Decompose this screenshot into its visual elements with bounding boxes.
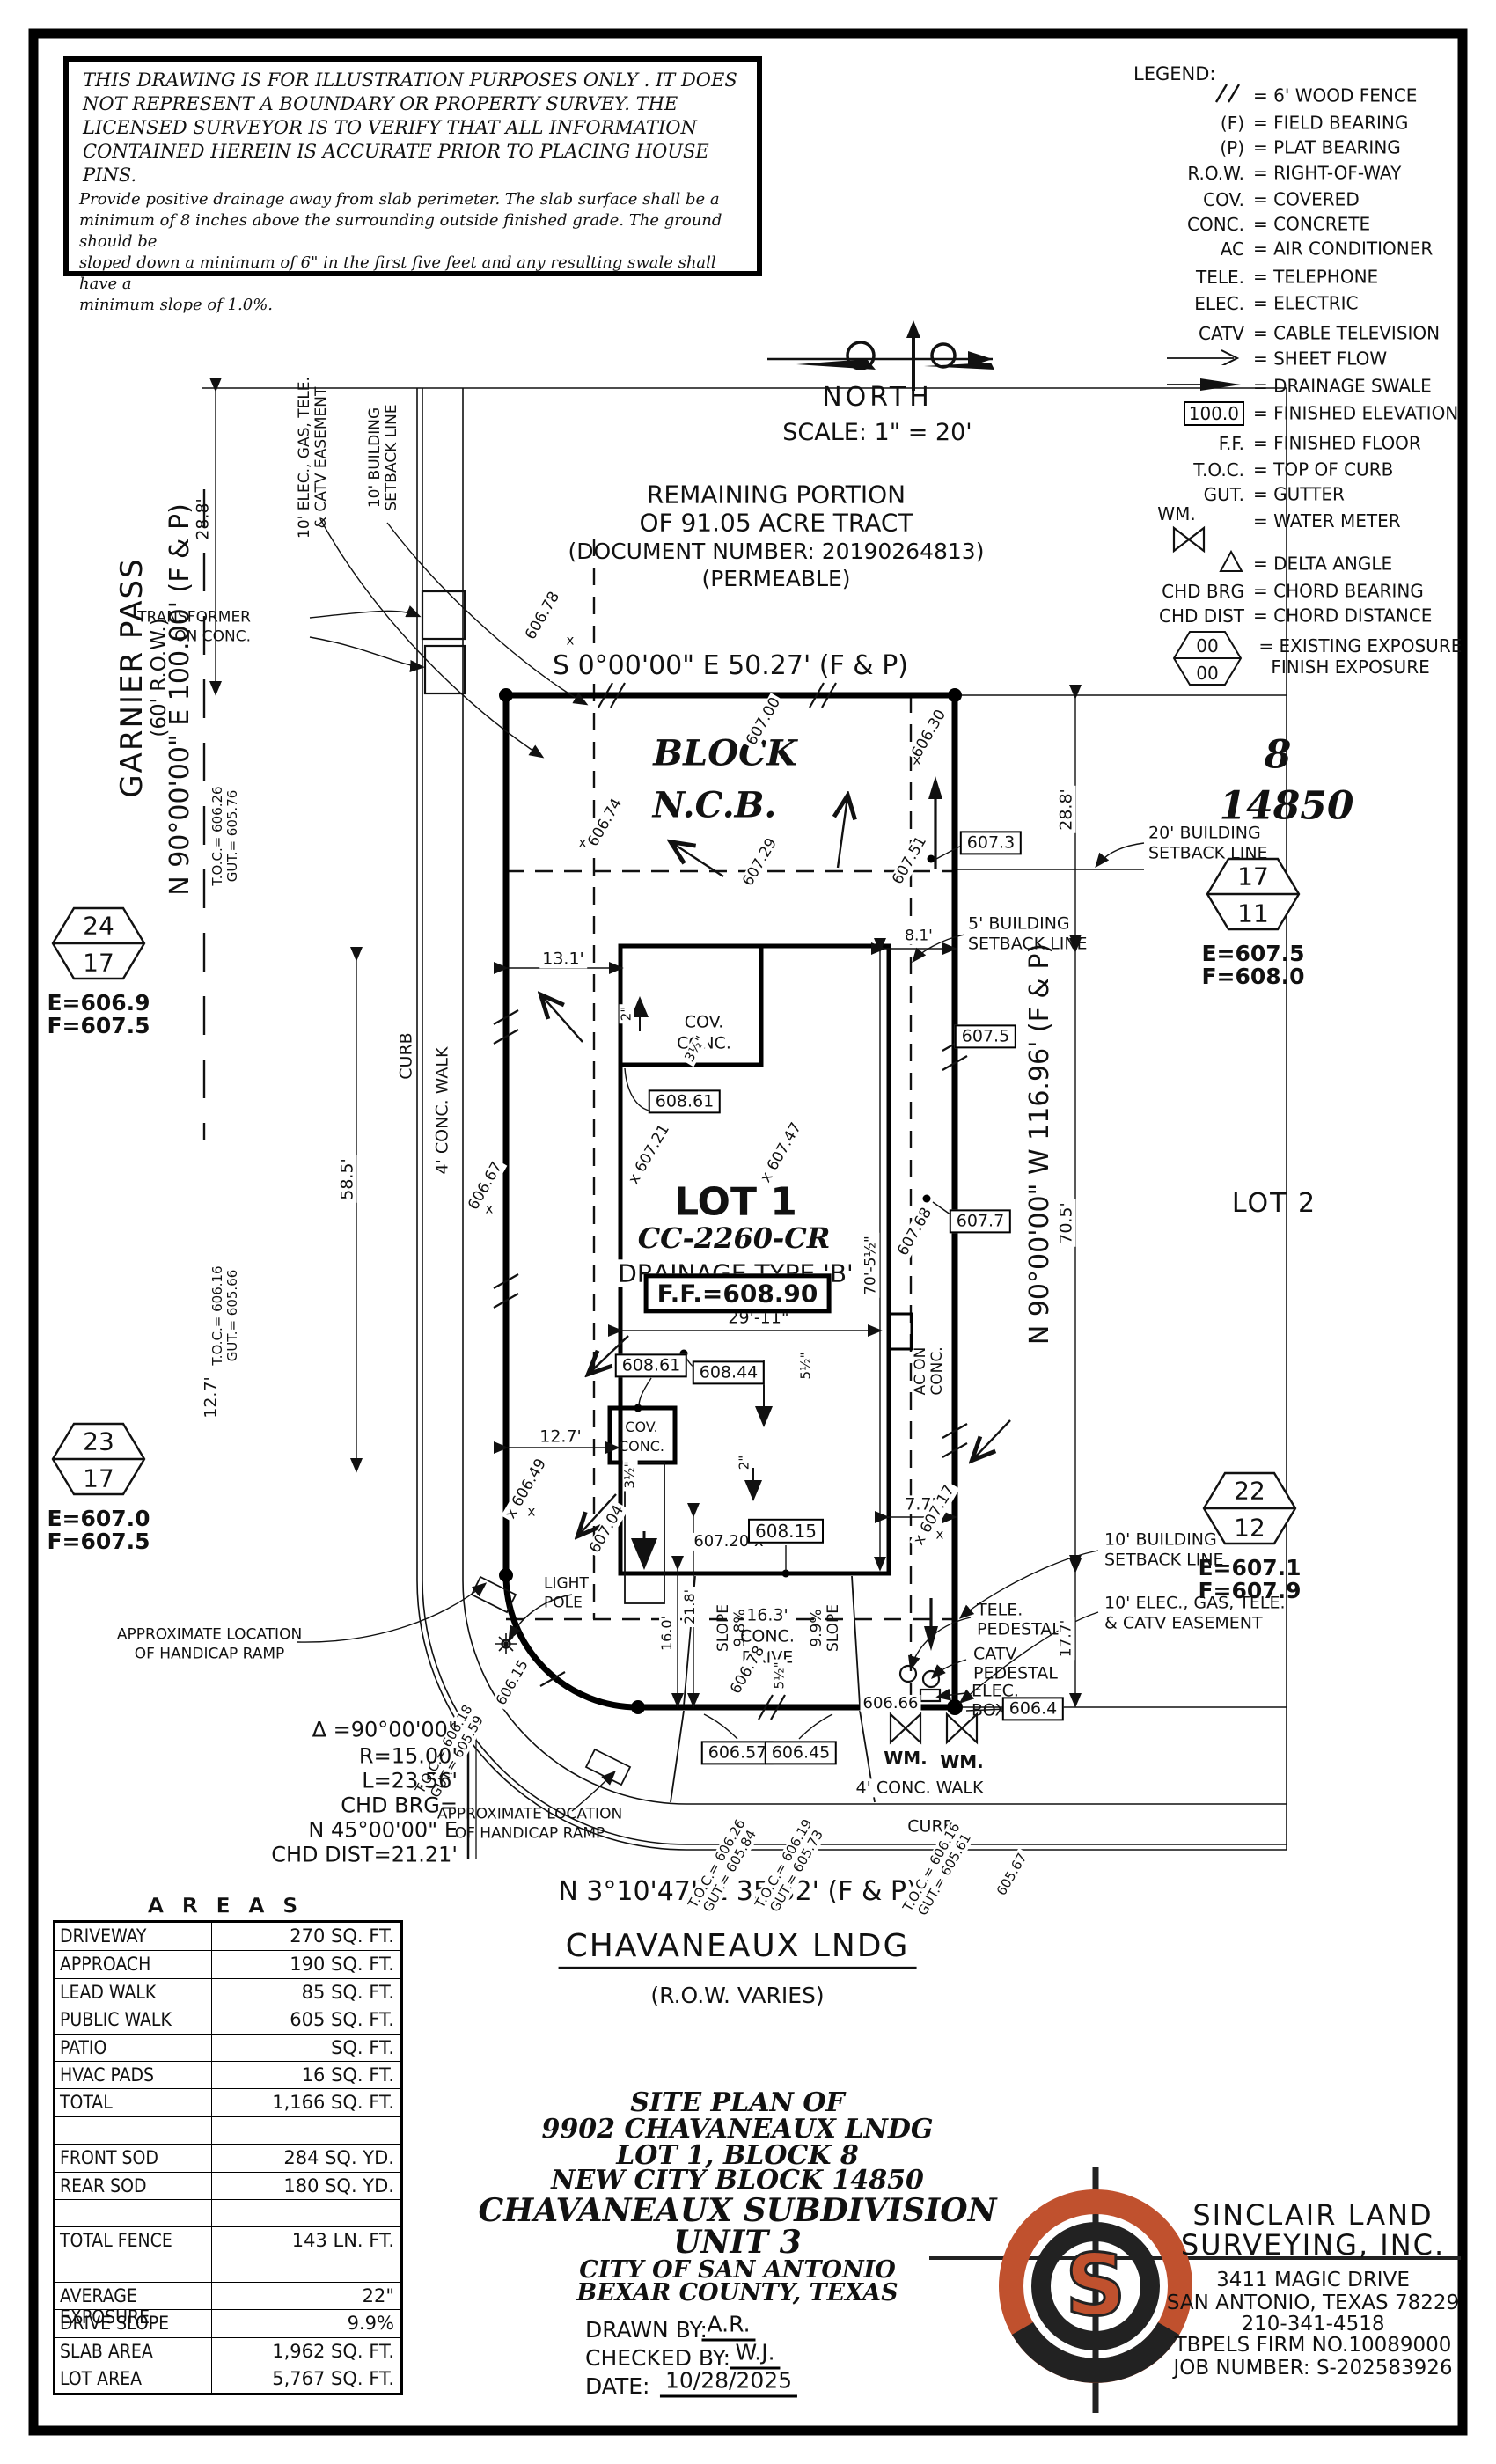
delta-angle-icon [1218, 549, 1244, 574]
table-row: REAR SOD180 SQ. YD. [55, 2172, 400, 2199]
finished-floor-box: F.F.=608.90 [644, 1273, 832, 1313]
street-row-garnier: (60' R.O.W.) [149, 618, 172, 737]
date-value: 10/28/2025 [660, 2369, 797, 2398]
legend-row-sheet-flow: = SHEET FLOW [1133, 347, 1485, 370]
table-row: TOTAL FENCE143 LN. FT. [55, 2226, 400, 2254]
wm-label: WM. [940, 1752, 984, 1771]
x-marker: x [567, 634, 575, 649]
curve-data: R=15.00' [359, 1745, 458, 1769]
hex-marker-value: 17 [1237, 862, 1269, 890]
light-pole-label: POLE [544, 1595, 583, 1611]
setback5-label: 5' BUILDING [968, 914, 1070, 933]
curve-data: N 45°00'00" E [308, 1819, 458, 1843]
x-marker: x [913, 753, 921, 768]
table-row [55, 2116, 400, 2144]
svg-text:00: 00 [1196, 635, 1218, 656]
dim-5half: 5½" [773, 1660, 788, 1692]
legend-row: COV.= COVERED [1133, 187, 1485, 210]
legend-row: GUT.= GUTTER [1133, 482, 1485, 505]
conc-walk-label: 4' CONC. WALK [854, 1778, 986, 1797]
svg-text:00: 00 [1196, 663, 1218, 684]
hex-finish-elev: F=607.9 [1198, 1579, 1301, 1603]
legend-row: CHD DIST= CHORD DISTANCE [1133, 604, 1485, 627]
dim-16-0: 16.0' [659, 1613, 675, 1654]
curve-data: L=23.56' [362, 1770, 458, 1793]
job-number: JOB NUMBER: S-202583926 [1173, 2358, 1452, 2380]
spot-elevation: 606.66 [861, 1695, 921, 1712]
title-block-line: UNIT 3 [673, 2225, 802, 2260]
block-label: BLOCK [653, 735, 796, 774]
curb-label: CURB [397, 1032, 415, 1079]
firm-name: SINCLAIR LAND [1192, 2200, 1433, 2232]
dim-5half: 5½" [799, 1350, 814, 1382]
legend-row-delta: = DELTA ANGLE [1133, 549, 1485, 578]
exposure-hex-icon: 0000 [1170, 628, 1244, 688]
dim-3half: 3½" [623, 1459, 638, 1492]
x-marker: x [528, 1505, 536, 1520]
title-block-line: BEXAR COUNTY, TEXAS [576, 2280, 898, 2306]
hex-existing-elev: E=606.9 [47, 991, 150, 1016]
x-marker: x [486, 1202, 494, 1217]
legend-row-wood-fence: = 6' WOOD FENCE [1133, 83, 1485, 108]
handicap-ramp-label: OF HANDICAP RAMP [455, 1825, 605, 1842]
boxed-elevation: 608.61 [615, 1353, 687, 1377]
cov-conc-label: COV. [625, 1419, 657, 1435]
table-row: DRIVE SLOPE9.9% [55, 2309, 400, 2336]
street-name-garnier-pass: GARNIER PASS [115, 557, 149, 797]
table-row: TOTAL1,166 SQ. FT. [55, 2088, 400, 2116]
table-row [55, 2199, 400, 2226]
block-number: 8 [1265, 733, 1292, 776]
wm-label: WM. [884, 1749, 928, 1768]
dim-2in: 2" [737, 1453, 752, 1472]
x-marker: x [936, 1528, 944, 1543]
firm-address: SAN ANTONIO, TEXAS 78229 [1167, 2292, 1459, 2315]
transformer-label: ON CONC. [174, 628, 251, 645]
setback5-label: SETBACK LINE [968, 935, 1088, 953]
hex-marker-value: 12 [1234, 1514, 1265, 1541]
legend-row: AC= AIR CONDITIONER [1133, 237, 1485, 260]
logo-letter: S [1065, 2236, 1126, 2335]
curve-data: CHD BRG= [341, 1794, 458, 1818]
table-row: AVERAGE EXPOSURE22" [55, 2282, 400, 2309]
cov-conc-label: COV. [685, 1013, 723, 1031]
catv-pedestal-symbol [923, 1671, 939, 1687]
setback10-label: 10' BUILDING [1104, 1530, 1217, 1549]
handicap-ramp-label: OF HANDICAP RAMP [135, 1646, 285, 1662]
x-marker: x [579, 836, 587, 851]
boxed-elevation: 607.7 [950, 1209, 1011, 1233]
firm-name: SURVEYING, INC. [1181, 2230, 1445, 2262]
disclaimer-box: THIS DRAWING IS FOR ILLUSTRATION PURPOSE… [63, 56, 762, 276]
table-row: HVAC PADS16 SQ. FT. [55, 2061, 400, 2088]
light-pole-symbol [495, 1633, 517, 1654]
survey-sheet: S THIS DRAWING IS FOR ILLUSTRATION PURPO… [0, 0, 1496, 2464]
drive-slope-label: 9.9%SLOPE [809, 1604, 842, 1652]
legend-row: CHD BRG= CHORD BEARING [1133, 579, 1485, 602]
boxed-elevation: 607.5 [955, 1024, 1016, 1048]
setback10-vertical-label: 10' BUILDINGSETBACK LINE [367, 404, 400, 510]
tract-line: (PERMEABLE) [701, 567, 850, 591]
ac-on-conc-label: AC ONCONC. [913, 1346, 946, 1395]
disclaimer-notes: Provide positive drainage away from slab… [79, 189, 757, 316]
tract-line: (DOCUMENT NUMBER: 20190264813) [568, 539, 985, 564]
title-block-line: NEW CITY BLOCK 14850 [551, 2166, 924, 2196]
table-row: SLAB AREA1,962 SQ. FT. [55, 2337, 400, 2365]
handicap-ramp-label: APPROXIMATE LOCATION [117, 1626, 302, 1643]
curve-data: Δ =90°00'00" [312, 1719, 458, 1742]
toc-gut-pair: T.O.C.= 606.26GUT.= 605.76 [210, 783, 240, 888]
tele-pedestal-label: PEDESTAL [977, 1620, 1061, 1639]
lot1-label: LOT 1 [671, 1180, 800, 1223]
bearing-top: S 0°00'00" E 50.27' (F & P) [550, 651, 911, 681]
tract-line: OF 91.05 ACRE TRACT [639, 509, 913, 536]
plan-code: CC-2260-CR [635, 1223, 833, 1255]
bearing-bottom: N 3°10'47" E 35.32' (F & P) [555, 1877, 919, 1907]
transformer-label: TRANSFORMER [137, 609, 251, 626]
elec-box-label: BOX [972, 1701, 1006, 1720]
checked-by-value: W.J. [730, 2341, 780, 2370]
north-label: NORTH [822, 383, 933, 413]
dim-70-5half: 70'-5½" [862, 1233, 879, 1298]
tract-line: REMAINING PORTION [647, 480, 906, 508]
dim-17-7: 17.7' [1058, 1617, 1074, 1661]
legend-row: CATV= CABLE TELEVISION [1133, 321, 1485, 344]
boxed-elevation: 606.4 [1002, 1697, 1064, 1720]
easement10-vertical-label: 10' ELEC., GAS, TELE.& CATV EASEMENT [297, 377, 330, 539]
boxed-elevation: 608.61 [649, 1089, 721, 1113]
boxed-elevation: 607.3 [960, 831, 1022, 854]
legend-row: R.O.W.= RIGHT-OF-WAY [1133, 161, 1485, 184]
legend-row: CONC.= CONCRETE [1133, 212, 1485, 235]
dim-12-7: 12.7' [537, 1427, 584, 1446]
setback20-label: SETBACK LINE [1148, 844, 1268, 862]
legend-row-drainage-swale: = DRAINAGE SWALE [1133, 374, 1485, 397]
table-row: PUBLIC WALK605 SQ. FT. [55, 2006, 400, 2033]
boxed-elevation: 608.15 [748, 1519, 824, 1544]
dim-28-8-left: 28.8' [194, 498, 212, 540]
dim-28-8-right: 28.8' [1057, 786, 1075, 833]
hex-marker-value: 11 [1237, 899, 1269, 927]
boxed-elevation: 608.44 [693, 1360, 765, 1384]
hex-marker-value: 17 [83, 1464, 114, 1492]
disclaimer-caps: THIS DRAWING IS FOR ILLUSTRATION PURPOSE… [83, 69, 757, 187]
conc-drive-label: 16.3' [744, 1606, 791, 1624]
table-row [55, 2255, 400, 2282]
drawn-by-value: A.R. [701, 2313, 755, 2342]
table-row: FRONT SOD284 SQ. YD. [55, 2144, 400, 2171]
drawn-by-label: DRAWN BY: [585, 2318, 708, 2343]
table-row: PATIOSQ. FT. [55, 2034, 400, 2061]
hex-finish-elev: F=607.5 [47, 1529, 150, 1554]
light-pole-label: LIGHT [544, 1575, 589, 1592]
legend-row-finished-elevation: 100.0= FINISHED ELEVATION [1133, 401, 1485, 424]
ncb-label: N.C.B. [653, 787, 777, 826]
north-compass [767, 320, 994, 391]
sheet-flow-icon [1165, 348, 1244, 365]
conc-walk-label: 4' CONC. WALK [433, 1047, 451, 1175]
cov-conc-label: CONC. [619, 1439, 664, 1455]
firm-address: 3411 MAGIC DRIVE [1216, 2270, 1410, 2292]
street-row-chavaneaux: (R.O.W. VARIES) [650, 1984, 824, 2008]
firm-registration: TBPELS FIRM NO.10089000 [1175, 2335, 1452, 2358]
table-row: LOT AREA5,767 SQ. FT. [55, 2365, 400, 2392]
firm-phone: 210-341-4518 [1242, 2314, 1385, 2336]
ncb-number: 14850 [1219, 784, 1353, 827]
date-label: DATE: [585, 2374, 649, 2399]
street-name-chavaneaux: CHAVANEAUX LNDG [559, 1929, 917, 1969]
areas-title: A R E A S [148, 1895, 304, 1918]
scale-label: SCALE: 1" = 20' [782, 420, 972, 446]
bearing-right: N 90°00'00" W 116.96' (F & P) [1025, 941, 1055, 1347]
handicap-ramp-label: APPROXIMATE LOCATION [437, 1806, 622, 1822]
dim-12-7-vert: 12.7' [202, 1376, 220, 1419]
hex-existing-elev: E=607.0 [47, 1507, 150, 1531]
hex-marker-value: 24 [83, 912, 114, 939]
lot2-label: LOT 2 [1232, 1189, 1316, 1219]
areas-table: DRIVEWAY270 SQ. FT. APPROACH190 SQ. FT. … [53, 1920, 403, 2395]
legend-row-exposure: 0000 = EXISTING EXPOSUREFINISH EXPOSURE [1133, 628, 1485, 693]
drive-slope-label: SLOPE9.8% [715, 1604, 749, 1652]
hex-marker-value: 17 [83, 949, 114, 976]
setback20-label: 20' BUILDING [1148, 824, 1261, 842]
dim-70-5: 70.5' [1057, 1199, 1075, 1247]
dim-13-1: 13.1' [539, 950, 587, 968]
water-meter-symbol [891, 1714, 920, 1742]
dim-2in: 2" [620, 1004, 634, 1023]
dim-8-1: 8.1' [902, 928, 935, 944]
table-row: DRIVEWAY270 SQ. FT. [55, 1923, 400, 1950]
legend-row: (P)= PLAT BEARING [1133, 136, 1485, 158]
drainage-swale-icon [1165, 375, 1244, 392]
hex-existing-elev: E=607.1 [1198, 1556, 1301, 1580]
dim-58-5: 58.5' [338, 1155, 356, 1203]
legend-title: LEGEND: [1133, 63, 1485, 84]
boxed-elevation: 606.45 [765, 1741, 837, 1764]
tele-pedestal-symbol [900, 1666, 916, 1682]
legend-row: T.O.C.= TOP OF CURB [1133, 458, 1485, 480]
elec-box-symbol [920, 1690, 940, 1701]
legend-row: F.F.= FINISHED FLOOR [1133, 431, 1485, 454]
hex-existing-elev: E=607.5 [1201, 942, 1304, 966]
table-row: LEAD WALK85 SQ. FT. [55, 1978, 400, 2006]
table-row: APPROACH190 SQ. FT. [55, 1950, 400, 1977]
legend-row: (F)= FIELD BEARING [1133, 111, 1485, 134]
hex-marker-value: 23 [83, 1427, 114, 1455]
hex-finish-elev: F=607.5 [47, 1014, 150, 1038]
hex-finish-elev: F=608.0 [1201, 964, 1304, 989]
tele-pedestal-label: TELE. [977, 1601, 1023, 1619]
toc-gut-pair: T.O.C.= 606.16GUT.= 605.66 [210, 1263, 240, 1368]
dim-21-8: 21.8' [682, 1587, 698, 1627]
legend-row: ELEC.= ELECTRIC [1133, 291, 1485, 314]
easement10-label: & CATV EASEMENT [1104, 1614, 1263, 1632]
wood-fence-icon [1209, 83, 1244, 104]
catv-pedestal-label: CATV [973, 1645, 1016, 1663]
curve-data: CHD DIST=21.21' [271, 1844, 458, 1867]
hex-marker-value: 22 [1234, 1477, 1265, 1504]
legend-row: TELE.= TELEPHONE [1133, 265, 1485, 288]
boxed-elevation: 606.57 [701, 1741, 774, 1764]
